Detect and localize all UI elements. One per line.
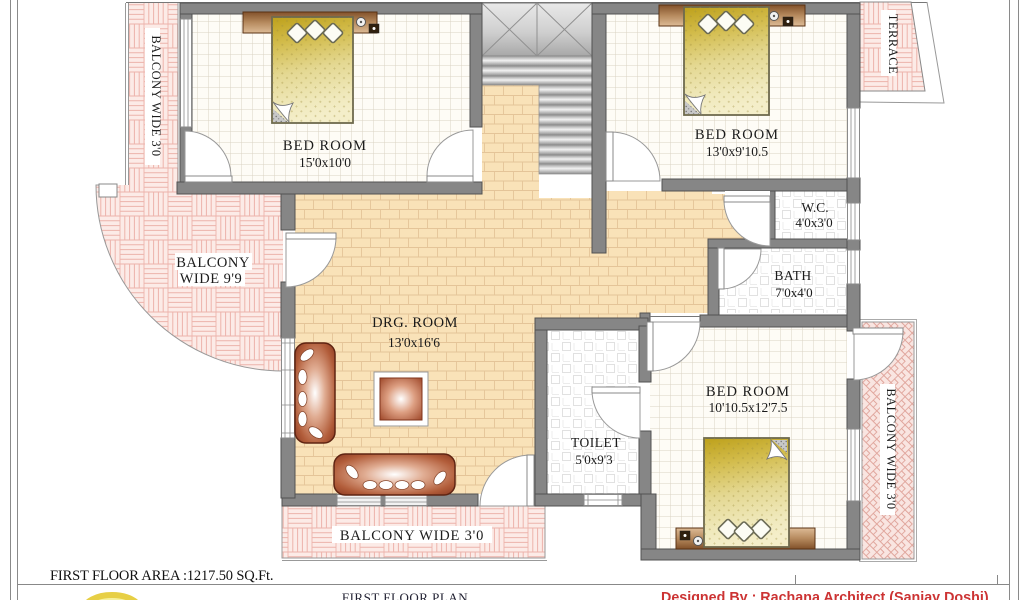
svg-text:4'0x3'0: 4'0x3'0 xyxy=(795,215,832,230)
svg-text:15'0x10'0: 15'0x10'0 xyxy=(299,155,351,170)
svg-text:WIDE 9'9: WIDE 9'9 xyxy=(180,271,243,287)
svg-text:TOILET: TOILET xyxy=(571,435,621,450)
svg-text:BATH: BATH xyxy=(774,268,811,283)
svg-text:BED ROOM: BED ROOM xyxy=(706,384,790,400)
svg-text:13'0x16'6: 13'0x16'6 xyxy=(388,335,440,350)
svg-text:W.C.: W.C. xyxy=(801,200,828,215)
svg-text:13'0x9'10.5: 13'0x9'10.5 xyxy=(706,144,768,159)
svg-text:TERRACE: TERRACE xyxy=(886,14,900,74)
svg-text:BALCONY: BALCONY xyxy=(176,255,250,271)
svg-text:BED ROOM: BED ROOM xyxy=(283,138,367,154)
svg-text:10'10.5x12'7.5: 10'10.5x12'7.5 xyxy=(708,400,787,415)
svg-text:BED ROOM: BED ROOM xyxy=(695,127,779,143)
svg-text:FIRST FLOOR PLAN: FIRST FLOOR PLAN xyxy=(342,590,468,600)
svg-text:BALCONY WIDE 3'0: BALCONY WIDE 3'0 xyxy=(884,388,898,509)
svg-text:FIRST FLOOR AREA :1217.50 SQ: FIRST FLOOR AREA :1217.50 SQ.Ft. xyxy=(50,568,273,584)
svg-text:BALCONY WIDE 3'0: BALCONY WIDE 3'0 xyxy=(340,528,484,544)
svg-text:7'0x4'0: 7'0x4'0 xyxy=(775,285,812,300)
svg-text:5'0x9'3: 5'0x9'3 xyxy=(575,452,612,467)
svg-text:BALCONY WIDE 3'0: BALCONY WIDE 3'0 xyxy=(149,35,163,156)
svg-text:Designed By : Rachana Architec: Designed By : Rachana Architect (Sanjay … xyxy=(661,590,989,600)
svg-text:DRG. ROOM: DRG. ROOM xyxy=(372,315,458,331)
